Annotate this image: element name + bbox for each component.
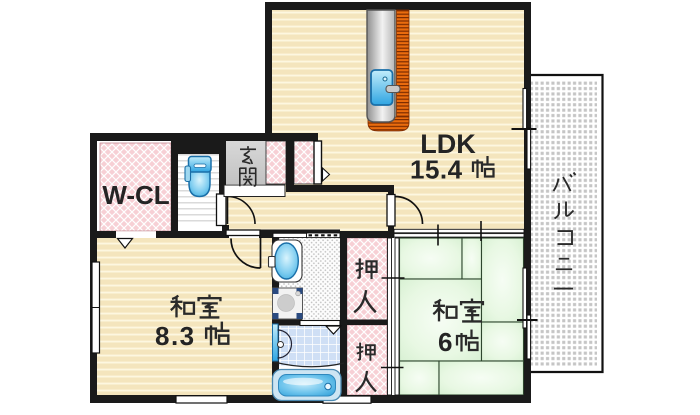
svg-text:8.3: 8.3: [155, 321, 196, 351]
svg-text:15.4: 15.4: [410, 155, 463, 185]
svg-text:6: 6: [438, 327, 452, 357]
svg-text:W-CL: W-CL: [102, 180, 169, 210]
